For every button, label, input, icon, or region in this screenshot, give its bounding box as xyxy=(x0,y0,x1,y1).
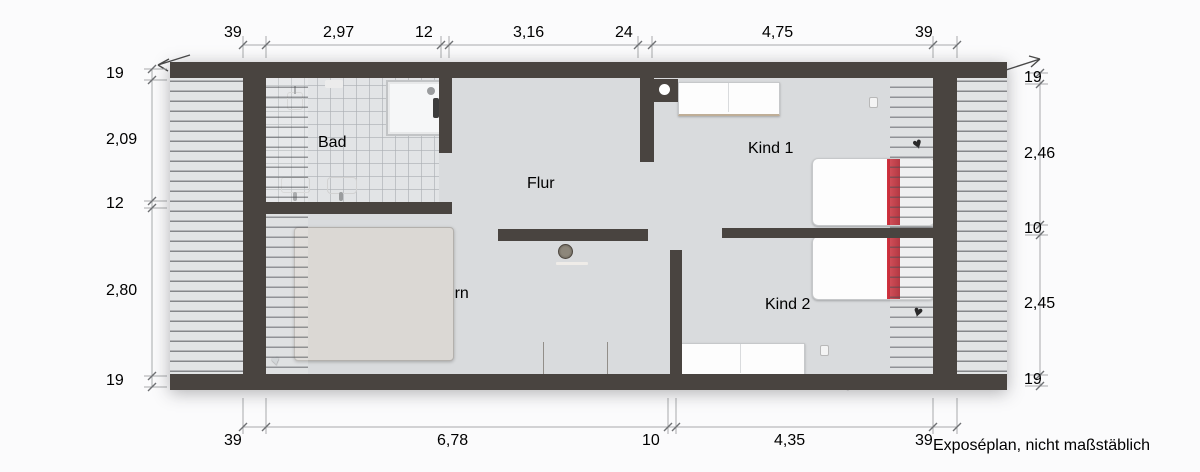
wardrobe-divider xyxy=(740,344,741,373)
dim-left-5: 19 xyxy=(106,372,124,390)
dim-top-3: 12 xyxy=(415,24,433,42)
wall-bottom xyxy=(170,374,1007,390)
floorplan-canvas: ♥ ♥ ♥ xyxy=(0,0,1200,472)
dim-right-3: 10 xyxy=(1024,220,1042,238)
chimney-block xyxy=(652,79,678,102)
dim-top-2: 2,97 xyxy=(323,24,354,42)
wardrobe-divider xyxy=(728,83,729,112)
dim-bottom-1: 39 xyxy=(224,432,242,450)
room-label-flur: Flur xyxy=(527,175,555,193)
dim-right-4: 2,45 xyxy=(1024,295,1055,313)
roof-hatch-right xyxy=(957,62,1007,390)
wall-kind1-kind2 xyxy=(722,228,933,238)
dim-top-7: 39 xyxy=(915,24,933,42)
wall-left xyxy=(243,62,266,390)
slope-hatch-left-inner xyxy=(266,78,308,374)
dim-left-4: 2,80 xyxy=(106,282,137,300)
room-label-kind1: Kind 1 xyxy=(748,140,793,158)
kind1-wardrobe xyxy=(678,82,780,116)
wardrobe-divider xyxy=(607,342,608,374)
kind2-desk-chair xyxy=(825,307,859,341)
wall-stair-east xyxy=(640,62,654,162)
parents-wardrobe xyxy=(480,342,670,374)
wall-bath-east xyxy=(439,62,452,153)
wardrobe-divider xyxy=(543,342,544,374)
room-label-bad: Bad xyxy=(318,134,346,152)
room-label-kind2: Kind 2 xyxy=(765,296,810,314)
sideboard-detail xyxy=(556,262,588,265)
wall-right xyxy=(933,62,957,390)
dim-bottom-2: 6,78 xyxy=(437,432,468,450)
wall-bath-south xyxy=(243,202,452,214)
dim-top-6: 4,75 xyxy=(762,24,793,42)
dim-right-1: 19 xyxy=(1024,69,1042,87)
dim-right-2: 2,46 xyxy=(1024,145,1055,163)
red-pillow xyxy=(824,258,858,285)
dim-top-4: 3,16 xyxy=(513,24,544,42)
red-pillow xyxy=(858,177,891,205)
dim-bottom-4: 4,35 xyxy=(774,432,805,450)
dim-left-2: 2,09 xyxy=(106,131,137,149)
wall-eltern-kind2 xyxy=(670,250,682,376)
desk-mug xyxy=(869,97,878,108)
dim-left-1: 19 xyxy=(106,65,124,83)
shower-head xyxy=(427,87,435,95)
dim-top-1: 39 xyxy=(224,24,242,42)
bathroom-sink-right xyxy=(321,173,361,202)
wall-top xyxy=(170,62,1007,78)
footnote-text: Exposéplan, nicht maßstäblich xyxy=(933,437,1150,455)
flue-circle-icon xyxy=(659,84,670,95)
parents-bed-duvet xyxy=(300,234,445,352)
dim-right-5: 19 xyxy=(1024,371,1042,389)
slope-hatch-right-inner xyxy=(890,78,933,374)
toilet-tank xyxy=(325,80,343,88)
wall-flur-eltern xyxy=(498,229,648,241)
sideboard-decor-icon xyxy=(558,244,573,259)
dim-bottom-5: 39 xyxy=(915,432,933,450)
red-pillow xyxy=(822,163,858,193)
kind1-desk xyxy=(815,85,877,118)
dim-bottom-3: 10 xyxy=(642,432,660,450)
shower xyxy=(386,80,443,136)
dim-top-5: 24 xyxy=(615,24,633,42)
parents-sideboard xyxy=(528,241,618,266)
dim-left-3: 12 xyxy=(106,195,124,213)
kind2-wardrobe xyxy=(678,343,805,376)
sink-tap xyxy=(339,192,343,201)
bathroom-toilet xyxy=(322,78,348,116)
desk-mug xyxy=(820,345,829,356)
roof-hatch-left xyxy=(170,62,243,390)
